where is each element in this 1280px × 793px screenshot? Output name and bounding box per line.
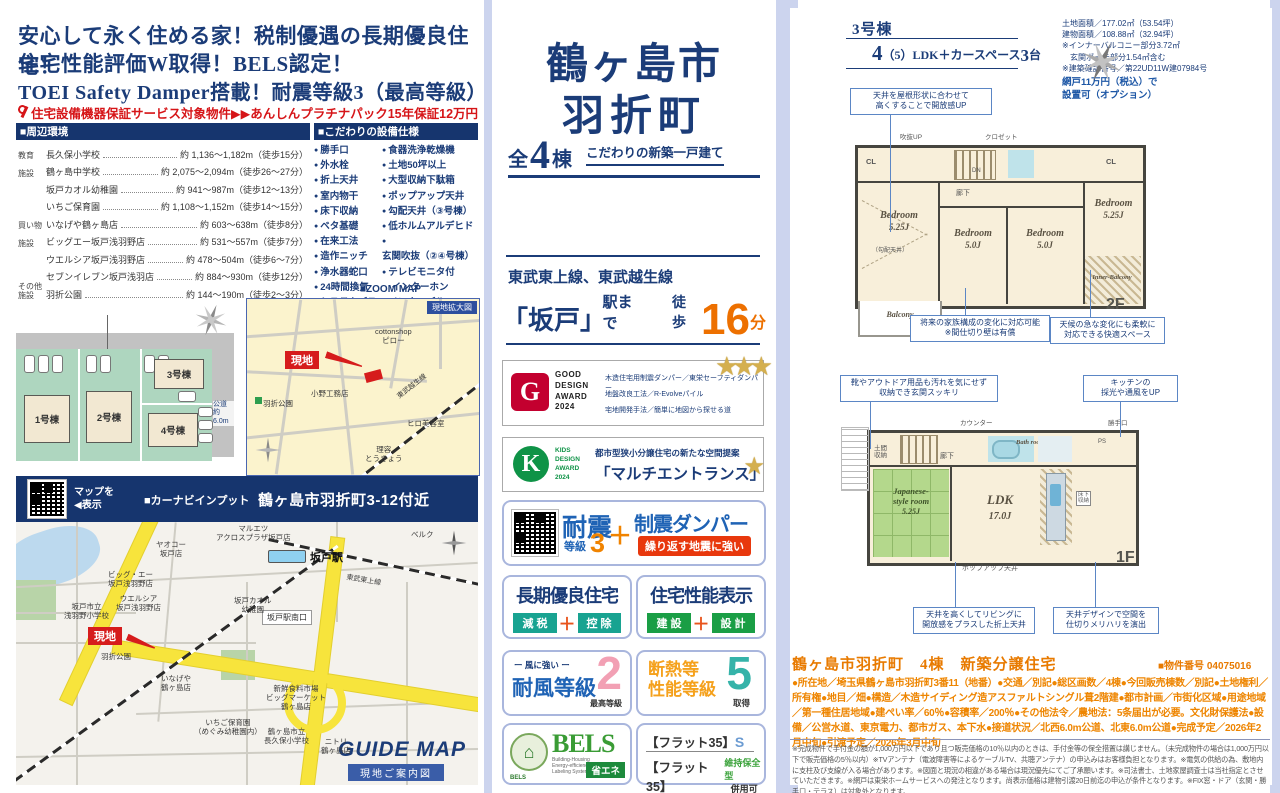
walk-label: 徒歩 — [672, 292, 699, 332]
env-name: 鶴ヶ島中学校 — [46, 165, 100, 178]
genchi-label: 現地 — [285, 351, 319, 369]
qr-code — [512, 510, 558, 556]
environment-section: ■周辺環境 教育 長久保小学校 約 1,136～1,182m（徒歩15分） 施設… — [16, 123, 310, 301]
poi-label: cottonshop ピロー — [375, 327, 412, 345]
closet-cl1: CL — [866, 158, 876, 167]
choki-pills: 減 税 ＋ 控 除 — [504, 610, 630, 635]
equipment-item: 床下収納 — [314, 204, 378, 219]
damper-label: 制震ダンパー — [634, 508, 748, 537]
carnavi-address: 鶴ヶ島市羽折町3-12付近 — [258, 489, 430, 510]
poi-label: いなげや 鶴ヶ島店 — [161, 674, 191, 692]
map-show-label: マップを ◀表示 — [74, 486, 114, 512]
equipment-item: 玄関吹抜（②④号棟） — [382, 234, 478, 264]
tokyu-label: 等級 — [564, 538, 586, 554]
callout-line — [870, 397, 871, 449]
taifu-title: 耐風等級 — [512, 672, 596, 702]
toilet — [1008, 150, 1034, 178]
taifu-note: 最高等級 — [590, 698, 622, 709]
poi-label: 坂戸カオル 幼稚園 — [234, 596, 272, 614]
equipment-item: 勝手口 — [314, 143, 378, 158]
kids-design-line1: 都市型狭小分譲住宅の新たな空間提案 — [595, 447, 740, 459]
stairs — [900, 435, 938, 464]
building-lot2: 2号棟 — [86, 391, 132, 443]
env-category: 施設 — [18, 239, 46, 248]
env-category: 買い物 — [18, 221, 46, 230]
env-row: 施設 ビッグエー坂戸浅羽野店 約 531～557m（徒歩7分） — [18, 231, 308, 249]
bedroom2-label: Bedroom5.0J — [942, 228, 1004, 251]
washroom — [1038, 436, 1072, 462]
floorplan-1f: 土間 収納 廊下 Bath room PS Japanese- style ro… — [867, 430, 1139, 566]
env-row: 施設 鶴ヶ島中学校 約 2,075～2,094m（徒歩26～27分） — [18, 161, 308, 179]
zoommap-tag: 現地拡大図 — [427, 301, 477, 314]
equipment-item: ベタ基礎 — [314, 219, 378, 234]
closet-cl2: CL — [1106, 158, 1116, 167]
equipment-header: ■こだわりの設備仕様 — [314, 123, 478, 140]
tou-label: 棟 — [552, 143, 572, 172]
compass-icon — [194, 303, 228, 337]
kensetsu-pill: 建 設 — [647, 613, 690, 633]
dotted-leader — [121, 227, 197, 228]
station-marker — [268, 550, 306, 563]
closet-label: クロゼット — [985, 134, 1018, 141]
poi-label: マルエツ アクロスプラザ坂戸店 — [216, 524, 291, 542]
env-category: 施設 — [18, 169, 46, 178]
underline — [846, 38, 1018, 39]
unit-count: 4 — [530, 138, 550, 172]
parking-cars — [24, 355, 63, 373]
lot-boundary — [140, 349, 142, 461]
flyer-page: 安心して永く住める家！税制優遇の長期優良住宅！ 住宅性能評価W取得！BELS認定… — [0, 0, 1280, 793]
kitchen-island — [1046, 473, 1066, 541]
fine-print: ※完成物件で手付金の額が1,000万円以下であり且つ販売価格の10％以内のときは… — [792, 744, 1270, 793]
katteguchi-label: 勝手口 — [1108, 420, 1128, 427]
award-star-icon: ★ — [743, 452, 765, 481]
property-title: 鶴ヶ島市羽折町 4棟 新築分譲住宅 — [792, 653, 1057, 674]
floor-label-1f: 1F — [1116, 549, 1135, 567]
environment-header: ■周辺環境 — [16, 123, 310, 140]
site-plan: 公道 約6.0m 公道 約6.0m 1号棟 2号棟 3号棟 4号棟 — [16, 303, 234, 471]
unit-name: 3号棟 — [852, 18, 893, 39]
env-distance: 約 1,136～1,182m（徒歩15分） — [180, 148, 308, 161]
plan-row: 4 （5）LDK＋カースペース 3 台 — [872, 44, 1041, 63]
callout-design: 天井デザインで空間を 仕切りメリハリを演出 — [1053, 607, 1159, 634]
callout-weather: 天候の急な変化にも柔軟に 対応できる快適スペース — [1050, 317, 1165, 344]
good-design-logo-text: GOOD DESIGN AWARD 2024 — [555, 370, 589, 413]
equipment-item: 大型収納下駄箱 — [382, 173, 478, 188]
building-area: 建物面積／108.88㎡（32.94坪） — [1062, 29, 1207, 40]
callout-ceiling: 天井を高くしてリビングに 開放感をプラスした折上天井 — [913, 607, 1035, 634]
good-design-logo-icon: G — [511, 373, 549, 411]
property-number: ■物件番号 04075016 — [1158, 657, 1251, 672]
damper-badge: 繰り返す地震に強い — [638, 536, 751, 556]
bels-logo-text: BELS — [510, 775, 526, 781]
equipment-item: 折上天井 — [314, 173, 378, 188]
floor-label-2f: 2F — [1106, 296, 1125, 314]
inner-balcony-label: Inner-Balcony — [1082, 274, 1142, 281]
dannetsu-box: 断熱等 性能等級 5 取得 — [636, 650, 766, 716]
dotted-leader — [85, 297, 183, 298]
good-design-box: G GOOD DESIGN AWARD 2024 木造住宅用制震ダンパー／東栄セ… — [502, 360, 764, 426]
env-category: その他 施設 — [18, 282, 46, 300]
kids-design-logo-icon: K — [513, 446, 549, 482]
hyoji-title: 住宅性能表示 — [638, 582, 764, 608]
seismic-box: 耐震 等級 3 ＋ 制震ダンパー 繰り返す地震に強い — [502, 500, 766, 566]
callout-line — [965, 288, 966, 315]
equipment-item: 造作ニッチ — [314, 249, 378, 264]
railway-label: 東武東上線 — [346, 574, 382, 588]
lot-boundary — [140, 403, 212, 405]
parking-car — [178, 391, 196, 402]
env-name: 坂戸カオル幼稚園 — [46, 183, 118, 196]
walk-minutes: 16 — [701, 302, 750, 337]
divider — [790, 739, 1270, 740]
dotted-leader — [157, 279, 192, 280]
env-row: 教育 長久保小学校 約 1,136～1,182m（徒歩15分） — [18, 143, 308, 161]
plan-mid: （5）LDK＋カースペース — [883, 46, 1021, 63]
flat35-label2: 【フラット35】 — [646, 757, 724, 793]
env-name: ビッグエー坂戸浅羽野店 — [46, 235, 145, 248]
callout-line — [1120, 397, 1121, 437]
poi-label: 新鮮食料市場 ビッグマーケット 鶴ヶ島店 — [266, 684, 326, 711]
divider — [506, 343, 760, 345]
callout-line — [1090, 270, 1091, 317]
zoommap-title: ■ZOOM MAP — [360, 284, 421, 295]
env-distance: 約 603～638m（徒歩8分） — [200, 218, 308, 231]
plan-cars: 3 — [1020, 48, 1029, 63]
poi-label: ヒロ美容室 — [407, 419, 445, 428]
iji-hozen: 維持保全型 — [724, 756, 764, 782]
qr-code — [28, 480, 66, 518]
dotted-leader — [148, 244, 197, 245]
poi-label: ベルク — [411, 530, 434, 539]
tagline: こだわりの新築一戸建て — [586, 142, 724, 166]
poi-label: ウエルシア 坂戸浅羽野店 — [116, 594, 161, 612]
callout-partition: 将来の家族構成の変化に対応可能 ※間仕切り壁は有償 — [910, 315, 1050, 342]
zen-label: 全 — [508, 143, 528, 172]
flat35s-row: 【フラット35】S — [646, 732, 744, 752]
dotted-leader — [103, 174, 158, 175]
flat35-label: 【フラット35】 — [646, 736, 735, 750]
taifu-sub: ー 風に強い ー — [514, 659, 570, 671]
env-row: いちご保育園 約 1,108～1,152m（徒歩14～15分） — [18, 196, 308, 214]
map-road — [247, 370, 427, 382]
poi-label: 羽折公園 — [101, 652, 131, 661]
kids-design-logo-text: KIDS DESIGN AWARD 2024 — [555, 446, 580, 482]
callout-sloped-ceiling: 天井を屋根形状に合わせて 高くすることで開放感UP — [850, 88, 992, 115]
sekkei-pill: 設 計 — [712, 613, 755, 633]
train-lines: 東武東上線、東武越生線 — [508, 266, 673, 287]
ps-label: PS — [1098, 439, 1106, 446]
site-lot-marker — [364, 369, 383, 383]
callout-line — [1095, 562, 1096, 607]
divider — [506, 255, 760, 257]
compass-icon — [255, 437, 281, 463]
guidemap-title: GUIDE MAP — [338, 738, 466, 762]
bels-title: BELS — [552, 729, 615, 759]
equipment-item: 在来工法 — [314, 234, 378, 249]
plus-sign: ＋ — [608, 516, 632, 551]
hallway-label: 廊下 — [940, 453, 954, 461]
callout-kitchen: キッチンの 採光や通風をUP — [1083, 375, 1178, 402]
parking-cars — [86, 355, 111, 373]
poi-label: 小野工務店 — [311, 389, 349, 398]
taishin-grade: 3 — [590, 528, 605, 559]
dannetsu-title: 断熱等 性能等級 — [648, 660, 716, 699]
divider — [646, 751, 754, 752]
env-row: 買い物 いなげや鶴ヶ島店 約 603～638m（徒歩8分） — [18, 213, 308, 231]
good-design-line3: 宅地開発手法／簡単に地図から探せる道 — [605, 405, 731, 415]
flat35-box: 【フラット35】S 【フラット35】 維持保全型 併用可 — [636, 723, 766, 785]
shoene-tag: 省エネ — [586, 762, 625, 778]
env-row: 坂戸カオル幼稚園 約 941～987m（徒歩12～13分） — [18, 178, 308, 196]
yukashita-label: 床下 収納 — [1076, 491, 1091, 506]
station-name: 「坂戸」 — [502, 300, 602, 337]
station-label: 坂戸駅 — [310, 549, 343, 565]
equipment-item: 外水栓 — [314, 158, 378, 173]
bels-box: ⌂ BELS BELS Building-Housing Energy-effi… — [502, 723, 632, 785]
env-distance: 約 2,075～2,094m（徒歩26～27分） — [161, 165, 308, 178]
center-column: 鶴ヶ島市 羽折町 全 4 棟 こだわりの新築一戸建て 東武東上線、東武越生線 「… — [492, 8, 776, 785]
env-distance: 約 478～504m（徒歩6～7分） — [186, 253, 308, 266]
railway-label: 東武越生線 — [396, 373, 429, 401]
counter-label: カウンター — [960, 420, 993, 427]
left-column: 安心して永く住める家！税制優遇の長期優良住宅！ 住宅性能評価W取得！BELS認定… — [8, 8, 484, 785]
award-stars-icon: ★★★ — [715, 351, 767, 382]
plan-ldk-count: 4 — [872, 44, 883, 63]
environment-list: 教育 長久保小学校 約 1,136～1,182m（徒歩15分） 施設 鶴ヶ島中学… — [16, 140, 310, 301]
doma-label: 土間 収納 — [874, 445, 887, 460]
env-distance: 約 1,108～1,152m（徒歩14～15分） — [161, 200, 308, 213]
equipment-item: 勾配天井（③号棟） — [382, 204, 478, 219]
flat35-s: S — [735, 734, 744, 750]
poi-label: いちご保育園 （めぐみ幼稚園内） — [194, 718, 262, 736]
genchi-label: 現地 — [88, 627, 122, 645]
headline-line3: TOEI Safety Damper搭載！耐震等級3（最高等級） — [18, 76, 484, 105]
env-name: セブンイレブン坂戸浅羽店 — [46, 270, 154, 283]
env-name: いちご保育園 — [46, 200, 100, 213]
ldk-label: LDK17.0J — [970, 493, 1030, 523]
bels-subtext: Building-Housing Energy-efficiency Label… — [552, 757, 590, 775]
popup-ceiling-label: ポップアップ天井 — [962, 565, 1018, 573]
choki-title: 長期優良住宅 — [504, 582, 630, 608]
japanese-room-label: Japanese- style room5.25J — [874, 487, 948, 516]
map-road — [333, 299, 354, 474]
navi-bar: マップを ◀表示 ■カーナビインプット 鶴ヶ島市羽折町3-12付近 — [16, 476, 478, 522]
fukinuke-label: 吹抜UP — [900, 134, 922, 141]
poi-label: ビッグ・エー 坂戸浅羽野店 — [108, 570, 153, 588]
kids-design-line2: 「マルチエントランス」 — [595, 462, 763, 484]
hyoji-box: 住宅性能表示 建 設 ＋ 設 計 — [636, 575, 766, 639]
env-name: ウエルシア坂戸浅羽野店 — [46, 253, 145, 266]
map-road — [76, 522, 78, 785]
dannetsu-note: 取得 — [733, 697, 750, 709]
poi-label: ニトリ 鶴ヶ島店 — [321, 737, 351, 755]
koubai-note: （勾配天井） — [872, 248, 908, 255]
park-marker — [255, 397, 262, 404]
taifu-grade: 2 — [596, 650, 622, 696]
carnavi-label: ■カーナビインプット — [144, 492, 249, 508]
poi-label: 坂戸市立 浅羽野小学校 — [64, 602, 109, 620]
floorplan-2f: DN CL CL 廊下 Bedroom5.25J （勾配天井） Bedroom5… — [855, 145, 1146, 309]
road-right-label: 公道 約6.0m — [213, 401, 234, 426]
hallway-label: 廊下 — [956, 190, 970, 198]
lot-boundary — [78, 349, 80, 461]
callout-entrance: 靴やアウトドア用品も汚れを気にせず 収納でき玄関スッキリ — [840, 375, 998, 402]
walk-unit: 分 — [750, 309, 766, 333]
genchi-pointer — [325, 351, 363, 369]
road-right — [212, 333, 234, 457]
guide-map: 坂戸駅 坂戸駅南口 マルエツ アクロスプラザ坂戸店 ベルク ヤオコー 坂戸店 ビ… — [16, 522, 478, 785]
guidemap-tag: 現地ご案内図 — [348, 764, 444, 781]
kojo-pill: 控 除 — [578, 613, 621, 633]
env-name: いなげや鶴ヶ島店 — [46, 218, 118, 231]
poi-label: 鶴ヶ島市立 長久保小学校 — [264, 727, 309, 745]
dotted-leader — [121, 192, 173, 193]
env-name: 長久保小学校 — [46, 148, 100, 161]
taifu-box: ー 風に強い ー 耐風等級 2 最高等級 — [502, 650, 632, 716]
dotted-leader — [148, 262, 183, 263]
equipment-item: 浄水器蛇口 — [314, 265, 378, 280]
stairs — [954, 150, 996, 180]
entrance-porch — [841, 427, 869, 491]
unit-count-row: 全 4 棟 こだわりの新築一戸建て — [508, 138, 760, 178]
env-name: 羽折公園 — [46, 288, 82, 301]
plus-sign: ＋ — [693, 610, 710, 635]
hyoji-pills: 建 設 ＋ 設 計 — [638, 610, 764, 635]
bedroom3-label: Bedroom5.0J — [1010, 228, 1080, 251]
equipment-item: 食器洗浄乾燥機 — [382, 143, 478, 158]
equipment-item: 土地50坪以上 — [382, 158, 478, 173]
land-area: 土地面積／177.02㎡（53.54坪） — [1062, 18, 1207, 29]
stairs-dn-label: DN — [972, 168, 981, 175]
kids-design-box: K KIDS DESIGN AWARD 2024 都市型狭小分譲住宅の新たな空間… — [502, 437, 764, 492]
callout-line — [955, 562, 956, 607]
building-lot3: 3号棟 — [154, 359, 204, 389]
env-row: セブンイレブン坂戸浅羽店 約 884～930m（徒歩12分） — [18, 266, 308, 284]
wrench-icon — [18, 106, 29, 118]
headline-line2: 住宅性能評価W取得！BELS認定！ — [18, 48, 353, 78]
compass-icon — [441, 530, 467, 556]
equipment-item: ポップアップ天井 — [382, 189, 478, 204]
poi-label: 理容 とうきょう — [365, 445, 403, 463]
underline — [846, 68, 1018, 69]
building-lot1: 1号棟 — [24, 395, 70, 443]
equipment-item: 低ホルムアルデヒド — [382, 219, 478, 234]
equipment-item: 室内物干 — [314, 189, 378, 204]
building-lot4: 4号棟 — [148, 413, 198, 447]
station-walk-row: 「坂戸」 駅まで 徒歩 16 分 — [502, 291, 766, 337]
station-suffix: 駅まで — [602, 291, 645, 333]
kitchen-sink — [1050, 484, 1061, 506]
map-road — [246, 318, 480, 338]
column-gutter — [484, 0, 492, 793]
env-row: ウエルシア坂戸浅羽野店 約 478～504m（徒歩6～7分） — [18, 248, 308, 266]
env-category: 教育 — [18, 151, 46, 160]
dannetsu-grade: 5 — [726, 650, 752, 696]
env-distance: 約 531～557m（徒歩7分） — [200, 235, 308, 248]
env-distance: 約 941～987m（徒歩12～13分） — [176, 183, 308, 196]
poi-label: ヤオコー 坂戸店 — [156, 540, 186, 558]
poi-label: 羽折公園 — [263, 399, 293, 408]
good-design-line2: 地盤改良工法／R-Evolveパイル — [605, 389, 703, 399]
parking-cars — [198, 407, 213, 443]
plan-unit: 台 — [1029, 46, 1041, 63]
choki-box: 長期優良住宅 減 税 ＋ 控 除 — [502, 575, 632, 639]
callout-line — [890, 112, 891, 232]
bedroom1-label: Bedroom5.25J — [860, 210, 938, 233]
genzei-pill: 減 税 — [513, 613, 556, 633]
right-column: 3号棟 4 （5）LDK＋カースペース 3 台 土地面積／177.02㎡（53.… — [790, 8, 1272, 785]
bedroom4-label: Bedroom5.25J — [1086, 198, 1141, 221]
env-distance: 約 884～930m（徒歩12分） — [195, 270, 308, 283]
compass-icon — [1080, 40, 1124, 84]
dotted-leader — [103, 209, 158, 210]
bels-logo-icon: ⌂ — [510, 733, 548, 771]
plus-sign: ＋ — [559, 610, 576, 635]
zoom-map: 東武越生線 現地 cottonshop ピロー 小野工務店 羽折公園 ヒロ美容室… — [246, 298, 480, 476]
flat35-hozen-row: 【フラット35】 維持保全型 併用可 — [646, 756, 764, 793]
dotted-leader — [103, 157, 177, 158]
heiyo-ka: 併用可 — [724, 782, 764, 793]
